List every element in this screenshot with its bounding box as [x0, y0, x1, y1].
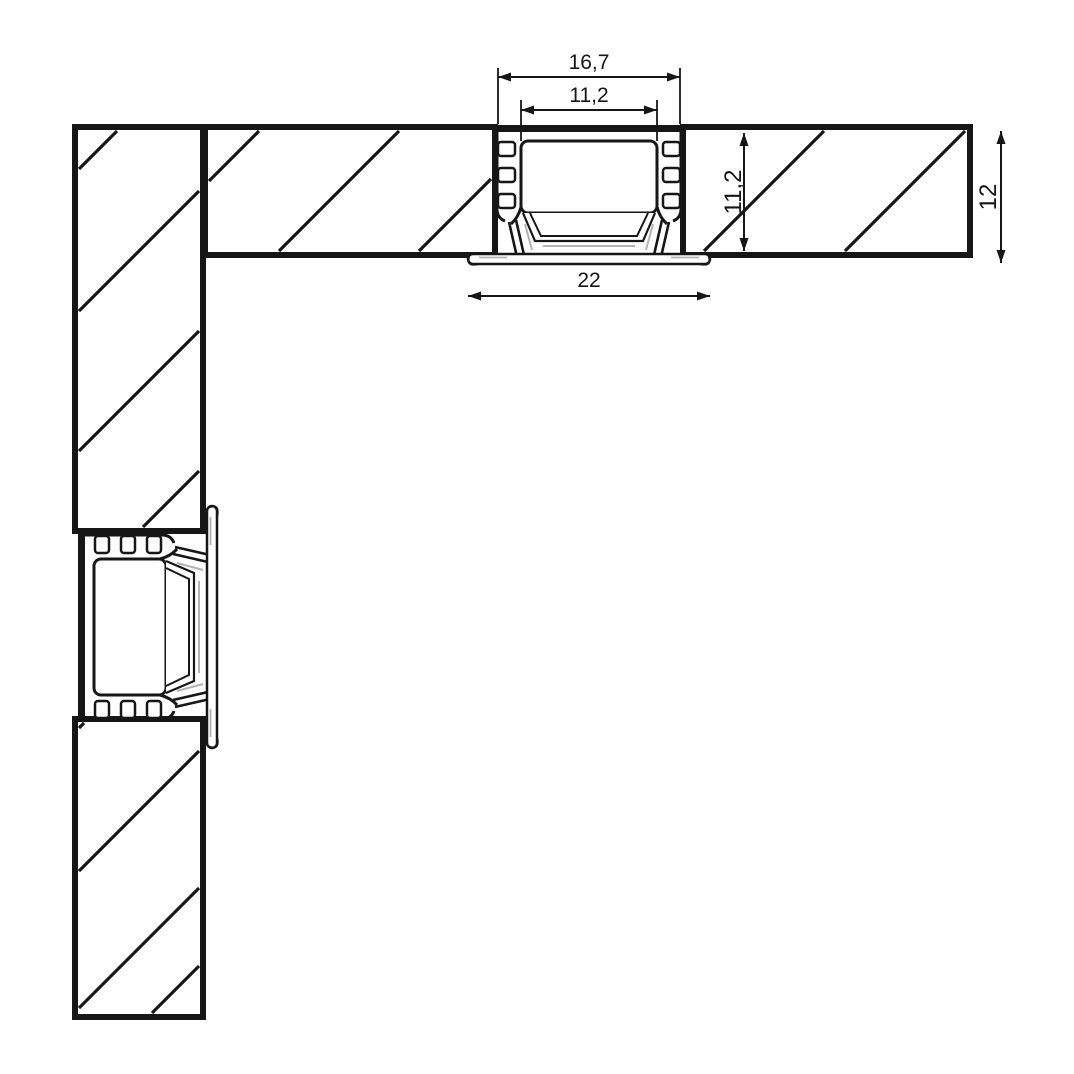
overall-width-arrowhead-left	[468, 292, 481, 301]
board-upper-left-vertical-outline	[75, 127, 203, 531]
outer-width-arrowhead-right	[667, 73, 680, 82]
board-thickness-arrowhead-top	[997, 131, 1006, 144]
dimension-label-recess-depth: 11,2	[720, 170, 747, 215]
outer-width-arrowhead-left	[498, 73, 511, 82]
dimension-board-thickness: 12	[975, 131, 1006, 263]
inner-width-arrowhead-left	[521, 106, 534, 115]
led-profile-top	[468, 125, 710, 265]
board-top-horizontal	[205, 127, 495, 255]
dimension-label-overall-width: 22	[577, 269, 600, 292]
dimension-label-inner-width: 11,2	[569, 84, 608, 107]
led-profile-left	[78, 506, 218, 748]
inner-width-arrowhead-right	[644, 106, 657, 115]
board-thickness-arrowhead-bottom	[997, 250, 1006, 263]
board-top-horizontal-outline	[205, 127, 495, 255]
dimension-label-board-thickness: 12	[975, 184, 1002, 211]
board-lower-left-vertical	[75, 719, 203, 1017]
dimension-label-outer-width: 16,7	[569, 51, 610, 74]
page: 16,711,22211,212	[0, 0, 1074, 1074]
board-upper-left-vertical	[75, 127, 203, 531]
overall-width-arrowhead-right	[697, 292, 710, 301]
dimension-inner-width: 11,2	[521, 84, 657, 141]
dimension-overall-width: 22	[468, 269, 710, 301]
technical-drawing: 16,711,22211,212	[0, 0, 1074, 1074]
board-lower-left-vertical-outline	[75, 719, 203, 1017]
